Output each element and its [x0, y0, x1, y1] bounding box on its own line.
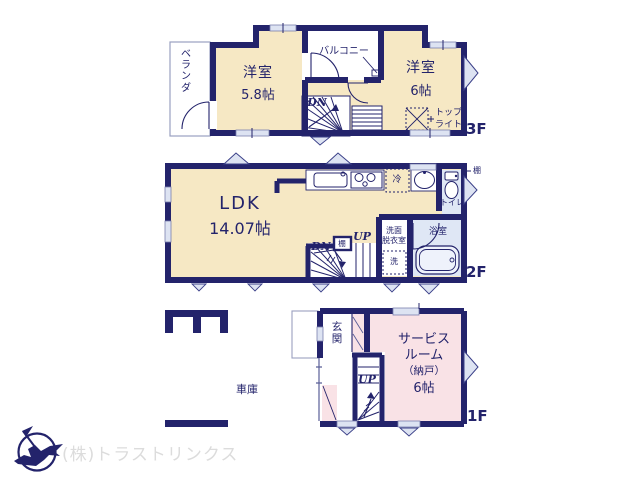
washer-label: 洗: [390, 258, 398, 266]
service-room-size: 6帖: [413, 382, 434, 395]
floor2-label: 2F: [466, 265, 487, 280]
bathroom-label: 浴室: [429, 228, 447, 237]
fridge-label: 冷: [392, 176, 401, 185]
entrance-label: 玄関: [330, 322, 344, 346]
toilet-label: トイレ: [440, 199, 464, 207]
toilet-icon: [445, 172, 458, 199]
washroom-label-line2: 脱衣室: [382, 237, 406, 245]
floor3-label: 3F: [466, 122, 487, 137]
stair-shelf-label: 棚: [338, 240, 346, 248]
stairs-up-label-1f: UP: [358, 374, 376, 385]
kitchen-sink-icon: [314, 172, 347, 187]
kitchen-counter: [306, 170, 384, 190]
stove-icon: [351, 172, 382, 188]
balcony-label: バルコニー: [319, 47, 369, 57]
bathtub-icon: [416, 246, 459, 274]
floor1-label: 1F: [467, 409, 488, 424]
skylight-label-line2: ライト: [435, 121, 462, 130]
garage-label: 車庫: [236, 384, 258, 395]
bedroom-small-size: 5.8帖: [241, 89, 275, 102]
stairs-dn-label-3f: DN: [307, 97, 327, 108]
bedroom-large-size: 6帖: [410, 85, 431, 98]
ldk-size: 14.07帖: [209, 221, 271, 237]
entrance-porch: [292, 311, 318, 358]
stairs-1f: [358, 358, 379, 421]
company-name: (株)トラストリンクス: [62, 447, 238, 464]
veranda-label: ベランダ: [179, 49, 193, 94]
wall-shelf-label: 棚: [473, 167, 481, 175]
skylight-label-line1: トップ: [435, 109, 462, 118]
company-logo: [14, 426, 63, 471]
bedroom-large-name: 洋室: [406, 61, 436, 75]
floor3-plan: [170, 23, 478, 145]
garage-walls: [165, 310, 228, 427]
bird-icon: [14, 444, 63, 466]
service-room-line2: ルーム: [405, 349, 444, 362]
service-room-line3: （納戸）: [403, 366, 445, 377]
stairs-up-label-2f: UP: [353, 231, 371, 242]
stairs-dn-label-2f: DN: [311, 241, 331, 252]
floorplan-page: ベランダ 洋室 5.8帖 バルコニー DN 洋室 6帖 トップ ライト 3F L…: [0, 0, 640, 480]
ldk-name: LDK: [219, 195, 261, 213]
bedroom-small-name: 洋室: [243, 66, 273, 80]
washroom-label-line1: 洗面: [386, 227, 402, 235]
washbasin-icon: [411, 169, 438, 191]
service-room-line1: サービス: [398, 333, 450, 346]
